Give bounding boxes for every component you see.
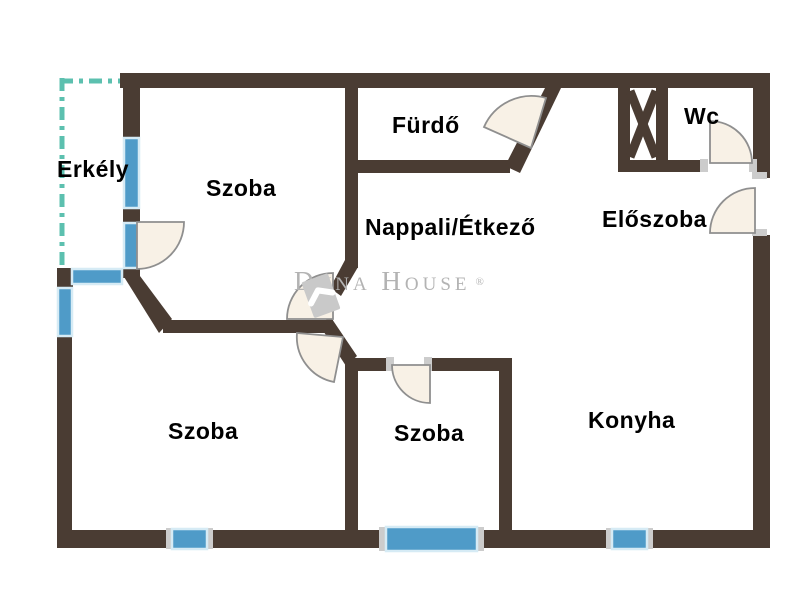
door-swing-arc (287, 273, 333, 319)
wall-segment (656, 88, 668, 160)
door-swing-arc (137, 222, 184, 269)
window (172, 529, 207, 549)
room-label-konyha: Konyha (588, 407, 675, 434)
wall-corner (57, 268, 73, 288)
wall-segment (618, 160, 708, 172)
room-label-furdo: Fürdő (392, 112, 460, 139)
room-label-szoba-top: Szoba (206, 175, 276, 202)
wall-segment (345, 362, 358, 548)
floor-plan-drawing (0, 0, 800, 600)
ventilation-shaft-x (630, 91, 656, 157)
wall-left (57, 336, 72, 548)
window (386, 527, 477, 551)
room-label-erkely: Erkély (57, 156, 129, 183)
floor-plan: Erkély Szoba Fürdő Wc Nappali/Étkező Elő… (0, 0, 800, 600)
window (612, 529, 647, 549)
door-swing-arc (710, 188, 755, 233)
wall-top (120, 73, 770, 88)
wall-bottom (647, 530, 770, 548)
wall-segment (499, 358, 512, 548)
wall-central (345, 88, 358, 268)
wall-segment (123, 208, 140, 223)
wall-bottom (477, 530, 612, 548)
wall-divider (163, 320, 333, 333)
room-label-eloszoba: Előszoba (602, 206, 707, 233)
wall-segment (345, 160, 510, 173)
wall-segment (123, 73, 140, 138)
wall-segment (618, 88, 630, 160)
door-swing-arc (392, 365, 430, 403)
wall-right (753, 235, 770, 548)
door-swing-arc (484, 96, 546, 148)
wall-diagonal (330, 260, 358, 296)
walls (57, 73, 770, 548)
room-label-szoba-middle: Szoba (394, 420, 464, 447)
window (58, 288, 72, 336)
room-label-wc: Wc (684, 103, 720, 130)
room-label-nappali: Nappali/Étkező (365, 214, 536, 241)
room-label-szoba-left: Szoba (168, 418, 238, 445)
door-swing-arc (297, 333, 343, 382)
window (72, 269, 122, 284)
wall-bottom (207, 530, 386, 548)
wall-bottom (57, 530, 172, 548)
